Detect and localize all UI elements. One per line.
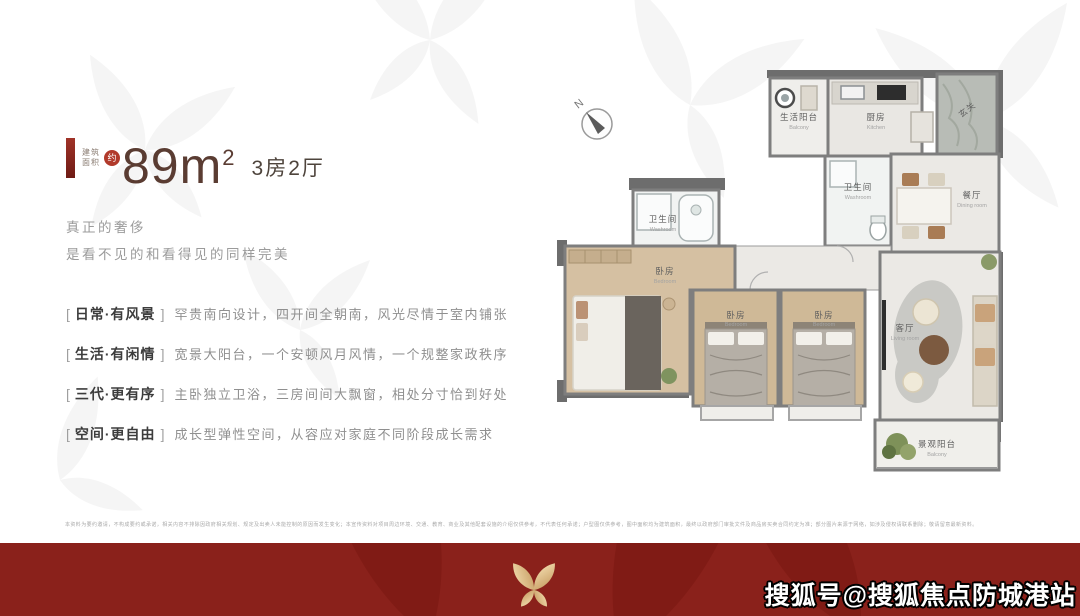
room-label: 餐厅 — [962, 190, 981, 200]
area-sup: 2 — [222, 145, 235, 170]
pillow — [708, 332, 734, 345]
room-label: 卧房 — [655, 266, 674, 276]
kitchen-sink — [841, 86, 864, 99]
toilet-tank — [871, 216, 885, 223]
floorplan: N — [545, 60, 1015, 500]
info-panel: 建筑 面积 约 89m2 3房2厅 真正的奢侈 是看不见的和看得见的同样完美 [… — [66, 136, 496, 464]
wardrobe — [569, 250, 631, 263]
room-label-en: Bedroom — [654, 279, 677, 285]
bay-window — [789, 406, 861, 420]
feature-label: 日常·有风景 — [75, 304, 156, 324]
compass-icon: N — [572, 97, 612, 139]
dining-chair — [902, 226, 919, 239]
area-prefix-line1: 建筑 — [82, 148, 100, 158]
footer-band: 搜狐号@搜狐焦点防城港站 — [0, 543, 1080, 616]
bracket-open: [ — [66, 306, 70, 322]
tagline-line2: 是看不见的和看得见的同样完美 — [66, 241, 496, 268]
feature-list: [日常·有风景] 罕贵南向设计，四开间全朝南，风光尽情于室内铺张 [生活·有闲情… — [66, 304, 496, 444]
tv-icon — [882, 300, 886, 370]
area-unit: m — [180, 138, 223, 194]
room-label-en: Balcony — [789, 125, 809, 131]
pillow — [576, 301, 588, 319]
bracket-open: [ — [66, 386, 70, 402]
feature-label: 空间·更自由 — [75, 424, 156, 444]
room-label: 景观阳台 — [918, 439, 956, 449]
room-label-en: Balcony — [927, 452, 947, 458]
dining-chair — [928, 173, 945, 186]
room-label: 厨房 — [866, 112, 885, 122]
plant-icon — [661, 368, 677, 384]
room-label: 生活阳台 — [780, 112, 818, 122]
watermark-text: 搜狐号@搜狐焦点防城港站 — [765, 576, 1076, 612]
bathtub-icon — [679, 195, 713, 241]
dining-table — [897, 188, 951, 224]
tagline-line1: 真正的奢侈 — [66, 214, 496, 241]
nightstand — [663, 298, 675, 310]
coffee-table — [919, 335, 949, 365]
feature-desc: 宽景大阳台，一个安顿风月风情，一个规整家政秩序 — [174, 344, 508, 363]
area-prefix: 建筑 面积 — [82, 138, 100, 178]
room-label-en: Bedroom — [813, 322, 836, 328]
brand-butterfly-logo-icon — [506, 560, 562, 608]
feature-desc: 成长型弹性空间，从容应对家庭不同阶段成长需求 — [174, 424, 493, 443]
sofa-cushion — [975, 326, 995, 344]
plant-icon — [981, 254, 997, 270]
compass-north-label: N — [572, 97, 586, 111]
bathtub-drain — [691, 205, 701, 215]
master-bed-throw — [625, 296, 661, 390]
floorplan-drawing: N — [545, 60, 1015, 500]
area-title: 建筑 面积 约 89m2 3房2厅 — [66, 136, 496, 188]
bracket-close: ] — [161, 306, 165, 322]
area-number: 89 — [122, 138, 180, 194]
tagline: 真正的奢侈 是看不见的和看得见的同样完美 — [66, 214, 496, 268]
room-label: 卫生间 — [844, 182, 873, 192]
dining-chair — [902, 173, 919, 186]
pillow — [576, 323, 588, 341]
room-label: 客厅 — [895, 323, 914, 333]
area-prefix-line2: 面积 — [82, 158, 100, 168]
bracket-open: [ — [66, 426, 70, 442]
kitchen-fridge — [911, 112, 933, 142]
feature-label: 三代·更有序 — [75, 384, 156, 404]
pillow — [826, 332, 852, 345]
feature-item: [生活·有闲情] 宽景大阳台，一个安顿风月风情，一个规整家政秩序 — [66, 344, 496, 364]
layout-label: 3房2厅 — [252, 152, 325, 182]
area-value: 89m2 — [122, 136, 236, 188]
kitchen-stove — [877, 85, 906, 100]
bay-window — [701, 406, 773, 420]
pouf — [903, 372, 923, 392]
title-accent-bar — [66, 138, 75, 178]
room-label-en: Living room — [891, 336, 920, 342]
bracket-close: ] — [161, 386, 165, 402]
bracket-open: [ — [66, 346, 70, 362]
room-label: 卧房 — [814, 310, 833, 320]
bracket-close: ] — [161, 426, 165, 442]
feature-item: [空间·更自由] 成长型弹性空间，从容应对家庭不同阶段成长需求 — [66, 424, 496, 444]
feature-item: [日常·有风景] 罕贵南向设计，四开间全朝南，风光尽情于室内铺张 — [66, 304, 496, 324]
washing-machine-drum — [781, 94, 789, 102]
room-label-en: Washroom — [650, 227, 677, 233]
room-label: 卫生间 — [649, 214, 678, 224]
sofa-cushion — [975, 348, 995, 366]
feature-item: [三代·更有序] 主卧独立卫浴，三房间间大飘窗，相处分寸恰到好处 — [66, 384, 496, 404]
corridor — [735, 246, 891, 290]
disclaimer-text: 本资料为要约邀请，不构成要约或承诺，相关内容不排除因政府相关规划、规定及出卖人未… — [65, 521, 1017, 528]
feature-desc: 主卧独立卫浴，三房间间大飘窗，相处分寸恰到好处 — [174, 384, 508, 403]
page: 建筑 面积 约 89m2 3房2厅 真正的奢侈 是看不见的和看得见的同样完美 [… — [0, 0, 1080, 616]
room-label-en: Dining room — [957, 203, 987, 209]
approx-badge: 约 — [104, 150, 120, 166]
balcony-cabinet — [801, 86, 817, 110]
feature-label: 生活·有闲情 — [75, 344, 156, 364]
room-label-en: Washroom — [845, 195, 872, 201]
bracket-close: ] — [161, 346, 165, 362]
room-label-en: Bedroom — [725, 322, 748, 328]
shower-stall — [637, 194, 671, 230]
sofa-cushion — [975, 304, 995, 322]
room-label: 卧房 — [726, 310, 745, 320]
dining-chair — [928, 226, 945, 239]
coffee-table — [913, 299, 939, 325]
room-label-en: Kitchen — [867, 125, 885, 131]
pillow — [796, 332, 822, 345]
feature-desc: 罕贵南向设计，四开间全朝南，风光尽情于室内铺张 — [174, 304, 508, 323]
pillow — [738, 332, 764, 345]
